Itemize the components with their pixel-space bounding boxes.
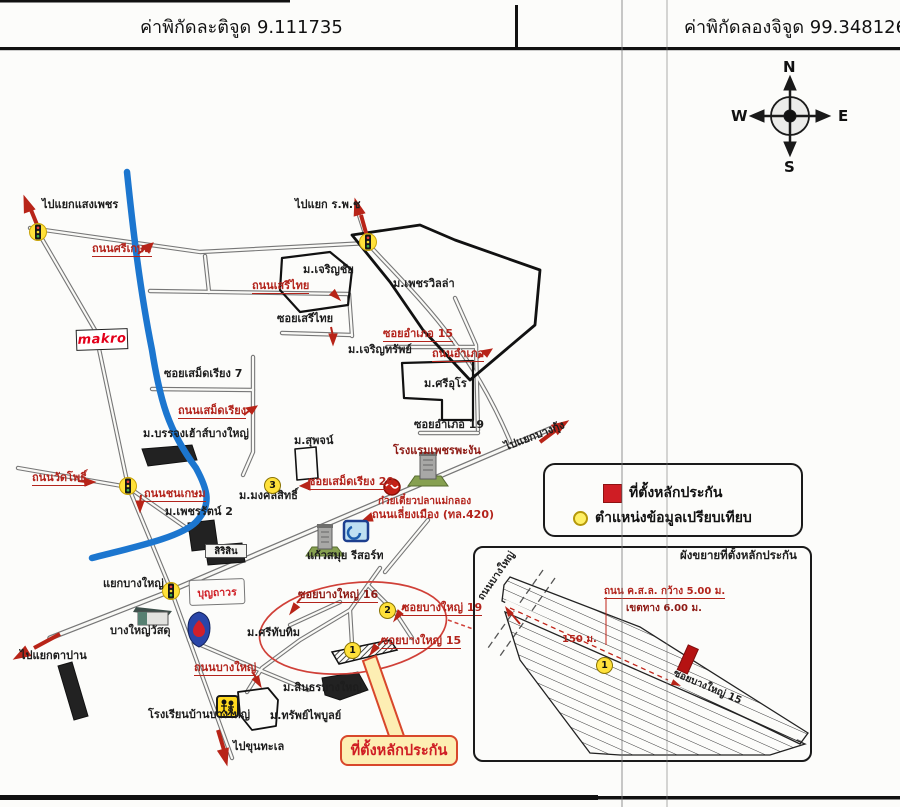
label-yaek-bangyai: แยกบางใหญ่ [103, 578, 164, 590]
label-to-tapan: ไปแยกตาปาน [20, 650, 87, 662]
label-m-charoenchai: ม.เจริญชัย [303, 264, 354, 276]
label-road-liangmueang: ถนนเลี่ยงเมือง (ทล.420) [372, 509, 494, 521]
label-to-rpc: ไปแยก ร.พ.ช [295, 199, 361, 211]
reference-marker-3: 3 [264, 477, 281, 494]
hotel-tower-icon [408, 452, 448, 486]
label-soi-bangyai15: ซอยบางใหญ่ 15 [381, 635, 461, 649]
label-soi-samret7: ซอยเสม็ดเรียง 7 [164, 368, 242, 380]
scanned-map-page: ค่าพิกัดละติจูด 9.111735 ค่าพิกัดลองจิจู… [0, 0, 900, 807]
sirisin-sign-label: สิริสิน [214, 544, 237, 559]
legend-collateral-row: ที่ตั้งหลักประกัน [603, 482, 722, 504]
makro-sign-label: makro [77, 331, 126, 348]
inset-road-spec-width: ถนน ค.ส.ล. กว้าง 5.00 ม. [604, 586, 725, 599]
label-soi-amphoe19: ซอยอำเภอ 19 [414, 419, 484, 431]
label-bangyai-wasadu: บางใหญ่วัสดุ [110, 625, 171, 637]
compass-rose [750, 76, 830, 156]
inset-distance-label: 150 ม. [562, 634, 597, 645]
compass-west: W [731, 107, 748, 125]
reference-marker-2: 2 [379, 602, 396, 619]
label-m-phetvilla: ม.เพชรวิลล่า [393, 278, 455, 290]
makro-sign: makro [76, 328, 129, 351]
warehouse-icon [133, 607, 172, 625]
collateral-callout: ที่ตั้งหลักประกัน [340, 735, 458, 766]
label-to-khuntalae: ไปขุนทะเล [233, 741, 284, 753]
inset-road-spec-row: เขตทาง 6.00 ม. [626, 603, 702, 614]
label-hotel-phetphangan: โรงแรมเพชรพะงัน [393, 445, 481, 457]
label-soi-serithai: ซอยเสรีไทย [277, 313, 333, 325]
label-road-samretriang: ถนนเสม็ดเรียง [178, 405, 246, 419]
label-kaewsamui-resort: แก้วสมุย รีสอร์ท [307, 550, 384, 562]
label-road-serithai: ถนนเสรีไทย [252, 280, 309, 294]
label-road-chonkasem: ถนนชนเกษม [144, 488, 206, 502]
legend-box: ที่ตั้งหลักประกัน ตำแหน่งข้อมูลเปรียบเที… [543, 463, 803, 537]
label-m-sapphaiboon: ม.ทรัพย์ไพบูลย์ [270, 710, 341, 722]
inset-reference-marker-1: 1 [596, 657, 613, 674]
label-m-srithapthim: ม.ศรีทับทิม [247, 627, 300, 639]
compass-north: N [783, 58, 796, 76]
label-m-suphot: ม.สุพจน์ [294, 435, 333, 447]
label-m-phetcharat2: ม.เพชรรัตน์ 2 [165, 506, 233, 518]
sirisin-sign: สิริสิน [205, 544, 247, 558]
label-school-banbangyai: โรงเรียนบ้านบางใหญ่ [148, 709, 250, 721]
collateral-square-icon [603, 484, 622, 503]
label-soi-amphoe15: ซอยอำเภอ 15 [383, 328, 453, 342]
collateral-callout-label: ที่ตั้งหลักประกัน [351, 739, 448, 762]
label-road-watpho: ถนนวัดโพธิ์ [32, 472, 87, 486]
boonthavorn-sign-label: บุญถาวร [197, 583, 237, 601]
label-road-amphoe: ถนนอำเภอ [432, 348, 484, 362]
label-road-srikasem: ถนนศรีเกษม [92, 243, 152, 257]
reference-marker-1: 1 [344, 642, 361, 659]
inset-detail-plan [473, 546, 812, 762]
label-soi-bangyai19: ซอยบางใหญ่ 19 [402, 602, 482, 616]
label-m-charoensap: ม.เจริญทรัพย์ [348, 344, 412, 356]
label-m-sinthorn: ม.สินธรบางใหญ่ [283, 682, 362, 694]
compass-east: E [838, 107, 848, 125]
label-m-banjong: ม.บรรจงเฮ้าส์บางใหญ่ [143, 428, 249, 440]
legend-reference-label: ตำแหน่งข้อมูลเปรียบเทียบ [595, 507, 752, 529]
longitude-value: ค่าพิกัดลองจิจูด 99.348126 [684, 12, 900, 41]
boonthavorn-sign: บุญถาวร [189, 578, 246, 606]
legend-reference-row: ตำแหน่งข้อมูลเปรียบเทียบ [573, 507, 752, 529]
inset-title: ผังขยายที่ตั้งหลักประกัน [680, 549, 797, 562]
label-m-sriuro: ม.ศรีอุโร [424, 378, 467, 390]
reference-circle-icon [573, 511, 588, 526]
label-soi-samret20: ซอยเสม็ดเรียง 20 [308, 476, 394, 490]
inset-connector-dashes [448, 620, 473, 629]
legend-collateral-label: ที่ตั้งหลักประกัน [629, 482, 722, 504]
blue-shop-sign-icon [344, 521, 368, 541]
label-soi-bangyai16: ซอยบางใหญ่ 16 [298, 589, 378, 603]
label-road-bangyai: ถนนบางใหญ่ [194, 662, 256, 676]
compass-south: S [784, 158, 795, 176]
arrow-to-khuntalae [218, 748, 229, 765]
latitude-value: ค่าพิกัดละติจูด 9.111735 [140, 12, 343, 41]
label-noodle-shop: ก๋วยเตี๋ยวปลาแม่กลอง [378, 496, 471, 507]
label-to-saengphet: ไปแยกแสงเพชร [42, 199, 118, 211]
